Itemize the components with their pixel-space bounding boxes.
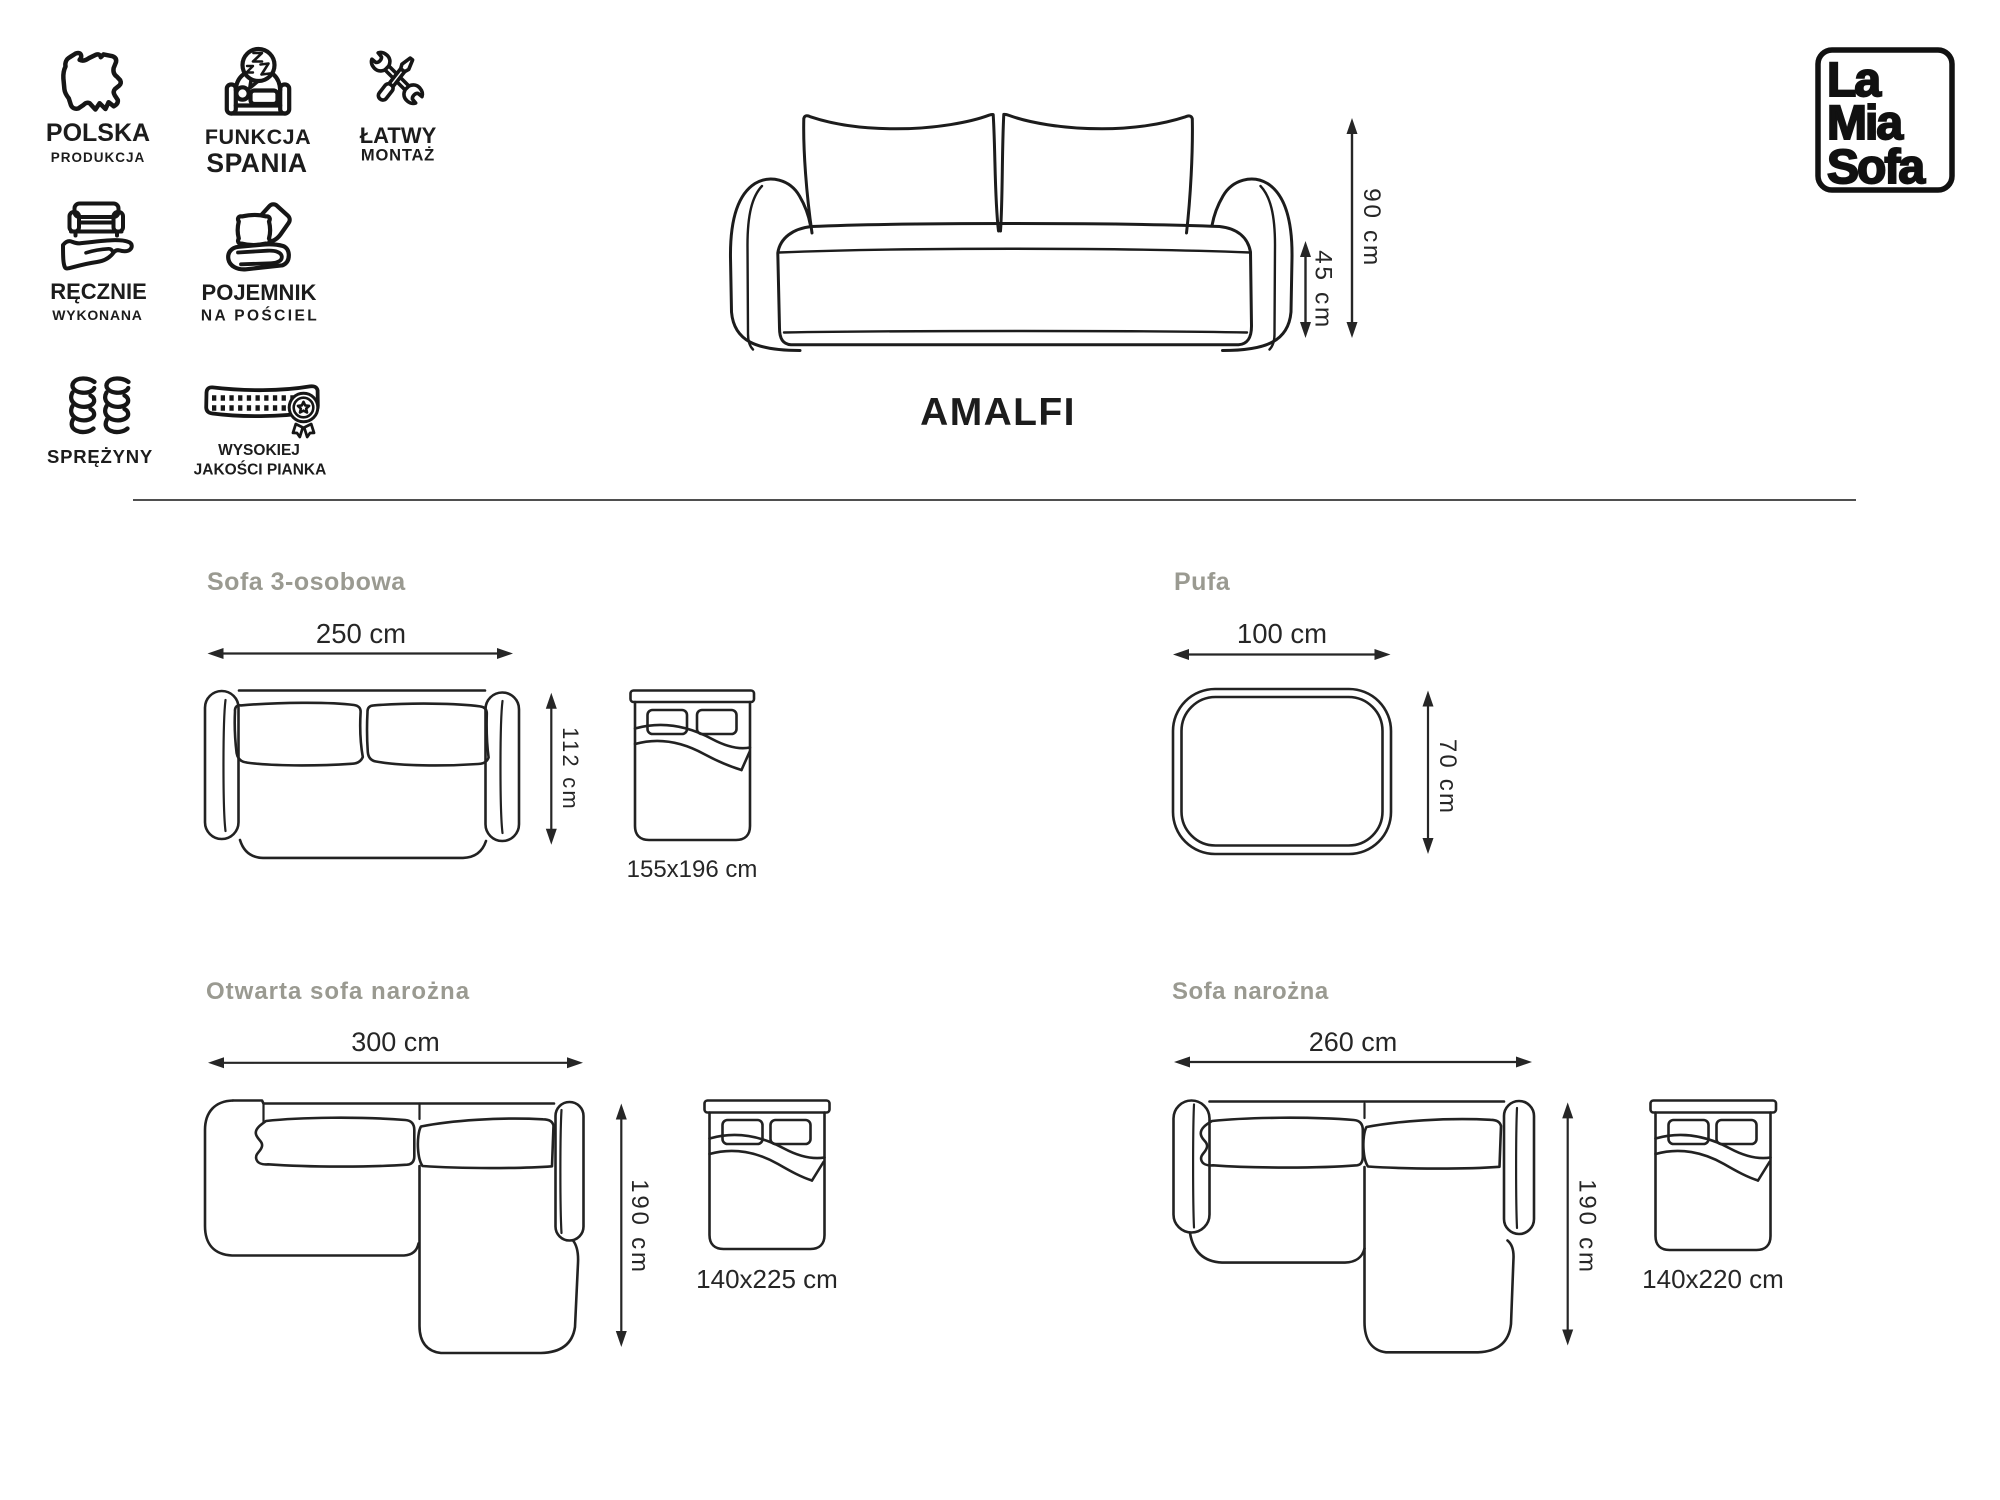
svg-text:RĘCZNIE: RĘCZNIE <box>50 279 147 304</box>
svg-text:NA POŚCIEL: NA POŚCIEL <box>201 307 319 325</box>
svg-text:AMALFI: AMALFI <box>920 391 1076 434</box>
svg-text:140x225 cm: 140x225 cm <box>696 1264 838 1294</box>
svg-text:112 cm: 112 cm <box>558 727 583 811</box>
svg-text:190 cm: 190 cm <box>626 1179 653 1275</box>
svg-text:WYKONANA: WYKONANA <box>52 307 142 323</box>
svg-text:45 cm: 45 cm <box>1310 250 1337 330</box>
svg-text:140x220 cm: 140x220 cm <box>1642 1264 1784 1294</box>
svg-text:155x196 cm: 155x196 cm <box>627 856 758 883</box>
svg-text:260 cm: 260 cm <box>1309 1027 1398 1057</box>
svg-text:Sofa narożna: Sofa narożna <box>1172 978 1329 1005</box>
svg-text:300 cm: 300 cm <box>351 1027 440 1057</box>
svg-text:190 cm: 190 cm <box>1574 1179 1601 1275</box>
svg-text:POLSKA: POLSKA <box>46 119 150 147</box>
svg-text:FUNKCJA: FUNKCJA <box>205 125 311 149</box>
svg-text:250 cm: 250 cm <box>316 618 406 649</box>
svg-text:MONTAŻ: MONTAŻ <box>361 147 435 165</box>
svg-text:70 cm: 70 cm <box>1434 739 1461 815</box>
svg-text:JAKOŚCI PIANKA: JAKOŚCI PIANKA <box>194 461 327 479</box>
svg-text:Sofa: Sofa <box>1827 141 1925 194</box>
svg-text:POJEMNIK: POJEMNIK <box>202 280 317 305</box>
svg-text:PRODUKCJA: PRODUKCJA <box>51 150 146 165</box>
svg-text:SPRĘŻYNY: SPRĘŻYNY <box>47 446 153 467</box>
svg-text:90 cm: 90 cm <box>1358 188 1385 268</box>
svg-text:Otwarta sofa narożna: Otwarta sofa narożna <box>206 978 470 1005</box>
svg-text:Pufa: Pufa <box>1174 568 1231 596</box>
svg-text:WYSOKIEJ: WYSOKIEJ <box>218 442 300 459</box>
svg-text:Sofa 3-osobowa: Sofa 3-osobowa <box>207 568 406 596</box>
svg-text:SPANIA: SPANIA <box>206 148 307 178</box>
svg-text:ŁATWY: ŁATWY <box>360 123 437 148</box>
svg-text:100 cm: 100 cm <box>1237 618 1327 649</box>
